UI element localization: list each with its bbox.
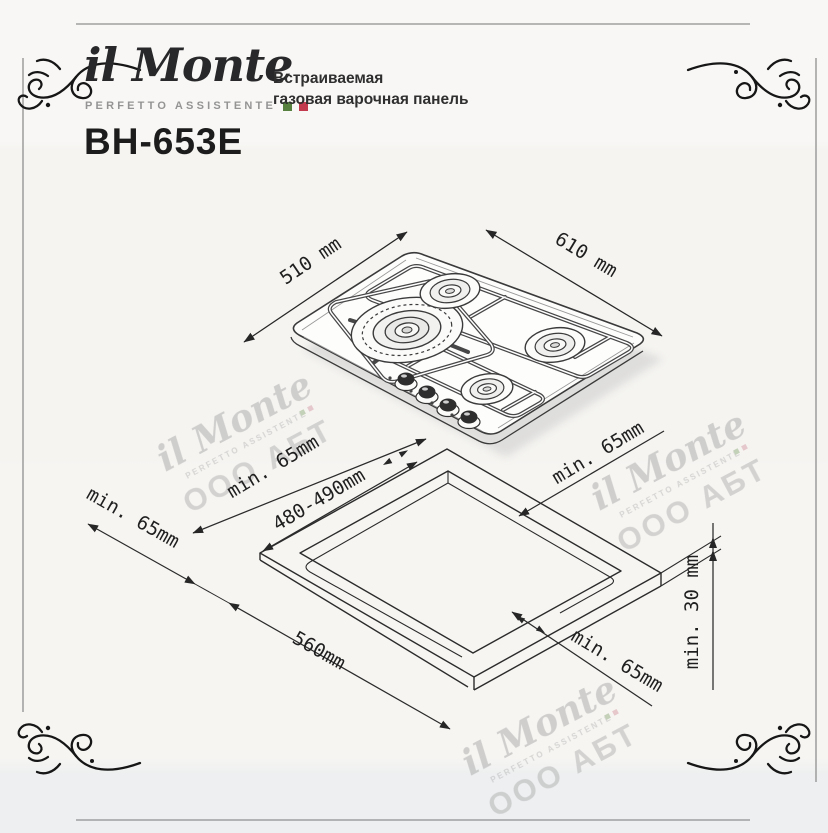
model-number: BH-653E [84,121,243,163]
corner-flourish-icon [688,724,809,773]
product-type: Встраиваемая газовая варочная панель [273,68,469,110]
product-type-line1: Встраиваемая [273,68,469,89]
watermark: il Monte PERFETTO ASSISTENTE ООО АБТ [455,668,646,825]
ignition-dot [450,413,453,416]
ignition-dot [388,376,391,379]
dimension-label-thickness: min. 30 mm [681,555,703,669]
brand-logo: il Monte [84,42,293,88]
product-type-line2: газовая варочная панель [273,89,469,110]
watermark: il Monte PERFETTO ASSISTENTE ООО АБТ [584,403,775,560]
ignition-dot [430,401,433,404]
brand-tagline: PERFETTO ASSISTENTE [85,100,276,112]
corner-flourish-icon [688,60,809,109]
dimension-label-560: 560mm [289,627,350,674]
ignition-dot [409,389,412,392]
dimension-label-margin-left: min. 65mm [83,483,183,553]
dimension-chain-link [195,584,229,603]
cutout-hole-outline [300,471,621,653]
corner-flourish-icon [19,724,140,773]
spec-sheet-page: il Monte PERFETTO ASSISTENTE Встраиваема… [0,0,828,833]
dimension-label-480-490: 480-490mm [269,464,369,535]
dimension-label-610: 610 mm [551,228,621,282]
